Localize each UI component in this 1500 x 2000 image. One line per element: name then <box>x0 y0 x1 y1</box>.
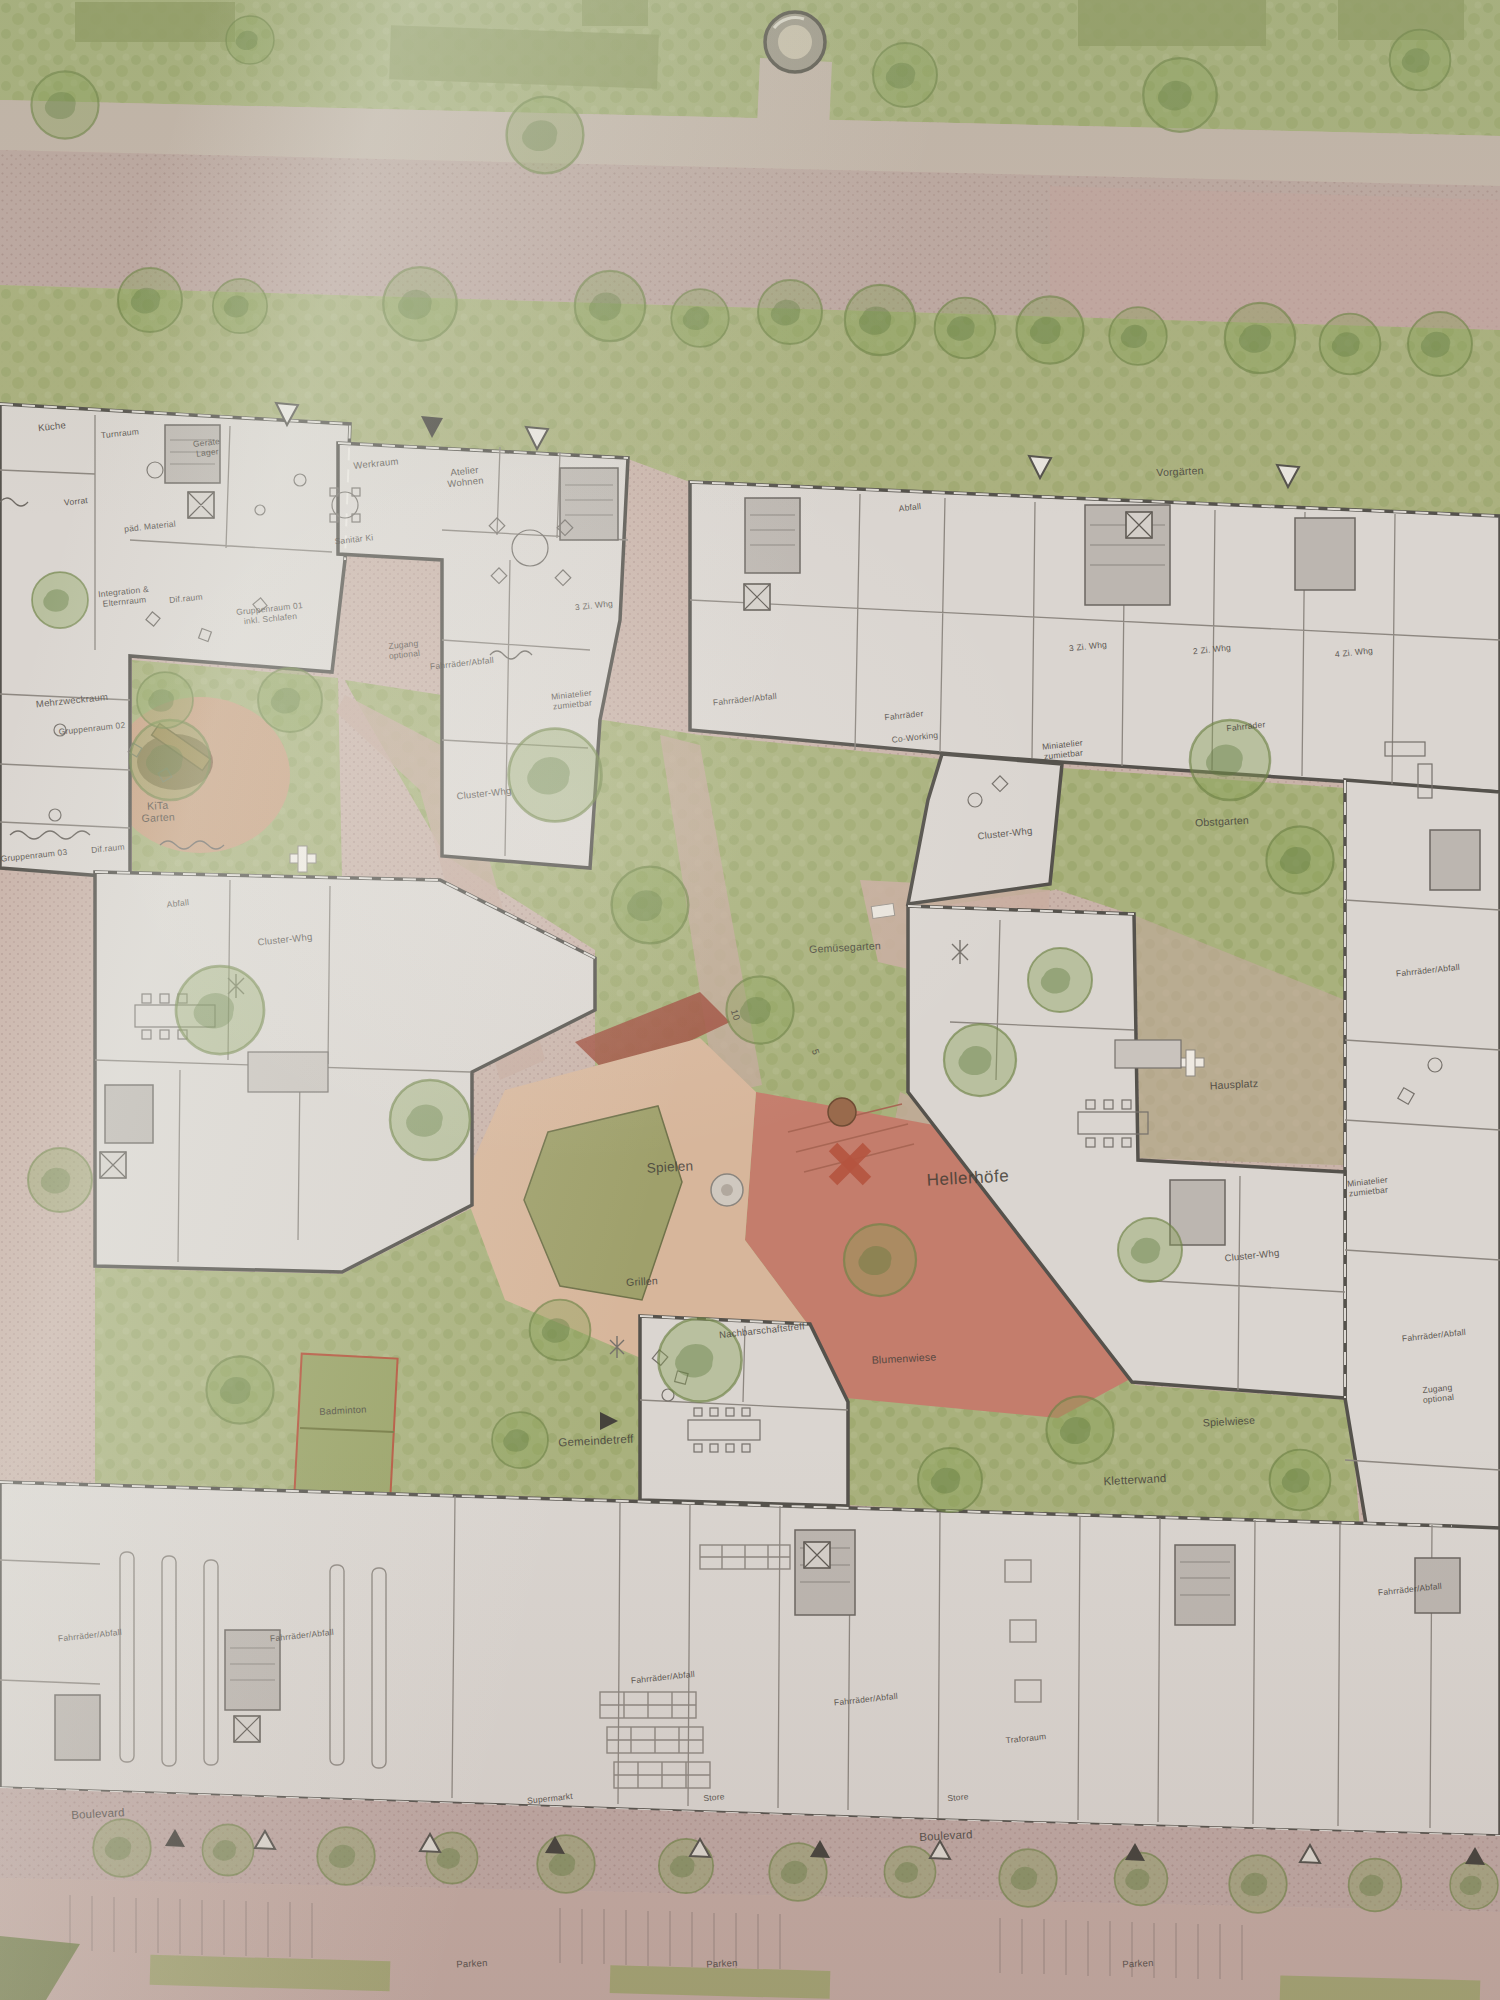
room-label-atelier-wohnen: Atelier Wohnen <box>446 465 484 490</box>
room-label-geraete-lager: Geräte Lager <box>192 437 221 459</box>
fountain <box>765 12 825 72</box>
label-zugang-optional-1: Zugang optional <box>387 639 420 661</box>
area-label-kita-garten: KiTa Garten <box>141 799 175 824</box>
site-plan-drawing <box>0 0 1500 2000</box>
area-label-grillen: Grillen <box>626 1275 658 1288</box>
building-east-slab <box>1345 780 1500 1545</box>
area-label-vorgaerten: Vorgärten <box>1156 465 1204 479</box>
area-label-parken-1: Parken <box>456 1958 488 1970</box>
area-label-spielen: Spielen <box>646 1158 693 1176</box>
site-plan-photo: Küche Turnraum Geräte Lager Vorrat päd. … <box>0 0 1500 2000</box>
area-label-parken-2: Parken <box>706 1958 738 1970</box>
area-label-parken-3: Parken <box>1122 1958 1154 1970</box>
